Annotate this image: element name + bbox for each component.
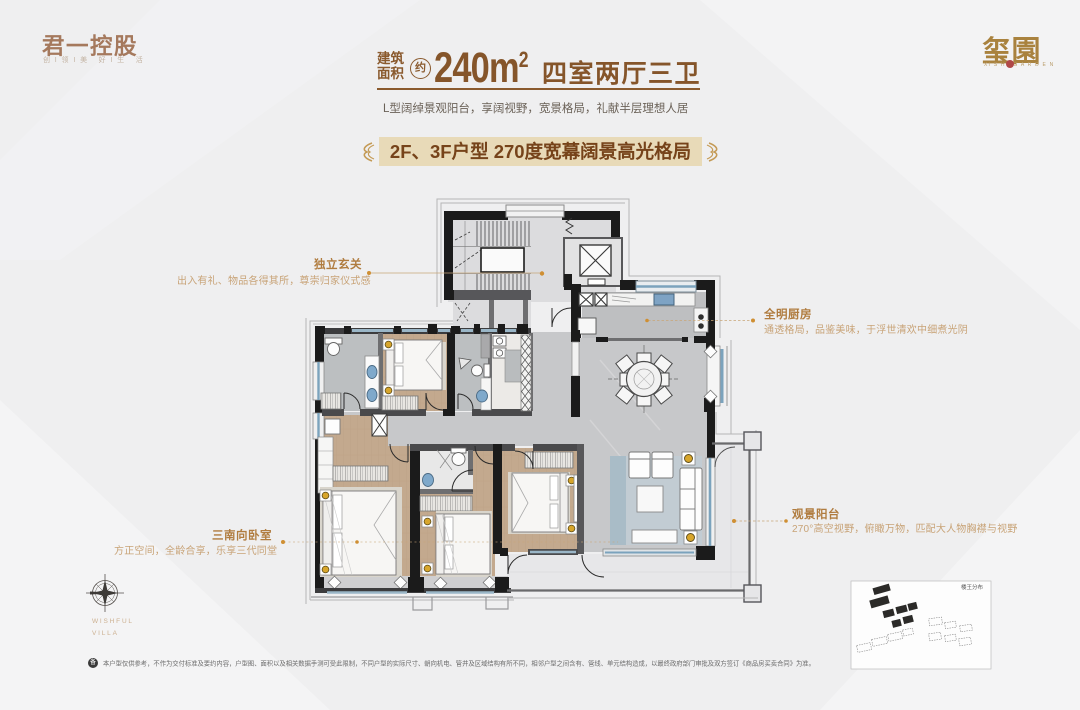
svg-text:楼王分布: 楼王分布 [961,583,984,591]
